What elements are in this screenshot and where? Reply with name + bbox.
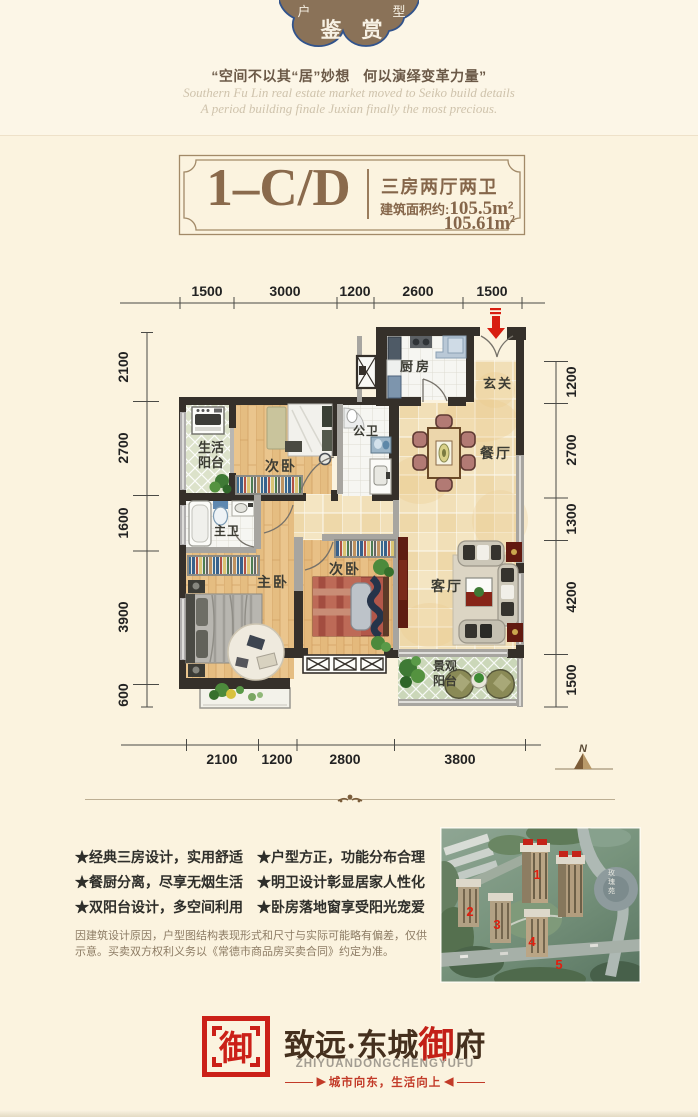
svg-text:次卧: 次卧 bbox=[265, 458, 297, 474]
svg-text:2700: 2700 bbox=[563, 434, 579, 465]
svg-text:4200: 4200 bbox=[563, 581, 579, 612]
svg-text:苑: 苑 bbox=[608, 886, 615, 895]
svg-text:景观: 景观 bbox=[433, 659, 457, 673]
svg-text:N: N bbox=[579, 743, 588, 755]
svg-text:3800: 3800 bbox=[444, 751, 475, 767]
svg-text:餐厅: 餐厅 bbox=[479, 445, 512, 461]
svg-text:主卫: 主卫 bbox=[214, 523, 240, 538]
svg-text:3: 3 bbox=[493, 917, 500, 932]
svg-text:2: 2 bbox=[466, 904, 473, 919]
svg-text:玫: 玫 bbox=[608, 868, 615, 877]
svg-text:1200: 1200 bbox=[563, 366, 579, 397]
svg-text:阳台: 阳台 bbox=[433, 673, 457, 688]
svg-text:5: 5 bbox=[555, 957, 562, 972]
svg-text:阳台: 阳台 bbox=[198, 455, 224, 470]
svg-text:次卧: 次卧 bbox=[329, 561, 361, 577]
svg-text:1200: 1200 bbox=[261, 751, 292, 767]
svg-text:瑰: 瑰 bbox=[608, 877, 615, 886]
svg-text:3900: 3900 bbox=[115, 601, 131, 632]
svg-text:生活: 生活 bbox=[198, 440, 224, 455]
svg-text:御: 御 bbox=[218, 1030, 253, 1068]
svg-text:1300: 1300 bbox=[563, 503, 579, 534]
svg-text:2600: 2600 bbox=[402, 283, 433, 299]
svg-text:1200: 1200 bbox=[339, 283, 370, 299]
svg-text:2800: 2800 bbox=[329, 751, 360, 767]
svg-text:主卧: 主卧 bbox=[257, 574, 289, 590]
svg-text:1500: 1500 bbox=[191, 283, 222, 299]
svg-text:1: 1 bbox=[533, 867, 540, 882]
svg-text:4: 4 bbox=[528, 934, 536, 949]
svg-text:2100: 2100 bbox=[115, 351, 131, 382]
svg-text:公卫: 公卫 bbox=[353, 424, 379, 438]
svg-text:600: 600 bbox=[115, 683, 131, 707]
svg-text:厨房: 厨房 bbox=[400, 359, 432, 374]
svg-text:玄关: 玄关 bbox=[483, 376, 513, 391]
svg-text:1600: 1600 bbox=[115, 507, 131, 538]
svg-text:1500: 1500 bbox=[563, 664, 579, 695]
svg-text:3000: 3000 bbox=[269, 283, 300, 299]
svg-text:1500: 1500 bbox=[476, 283, 507, 299]
svg-text:客厅: 客厅 bbox=[430, 578, 463, 594]
svg-text:2100: 2100 bbox=[206, 751, 237, 767]
svg-text:2700: 2700 bbox=[115, 432, 131, 463]
